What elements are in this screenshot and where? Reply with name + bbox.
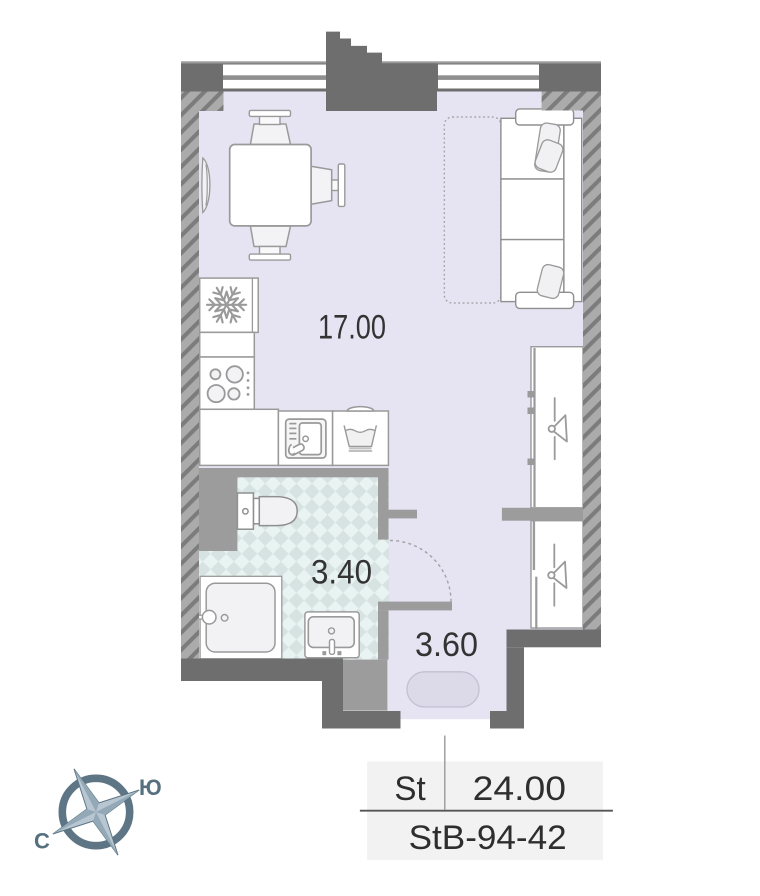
svg-text:24.00: 24.00 — [473, 770, 566, 808]
svg-text:С: С — [34, 829, 50, 854]
svg-text:17.00: 17.00 — [318, 309, 386, 347]
svg-text:3.40: 3.40 — [311, 553, 372, 591]
svg-text:Ю: Ю — [139, 775, 162, 800]
svg-text:St: St — [394, 770, 426, 808]
svg-text:StB-94-42: StB-94-42 — [409, 819, 567, 857]
svg-text:3.60: 3.60 — [415, 626, 478, 664]
